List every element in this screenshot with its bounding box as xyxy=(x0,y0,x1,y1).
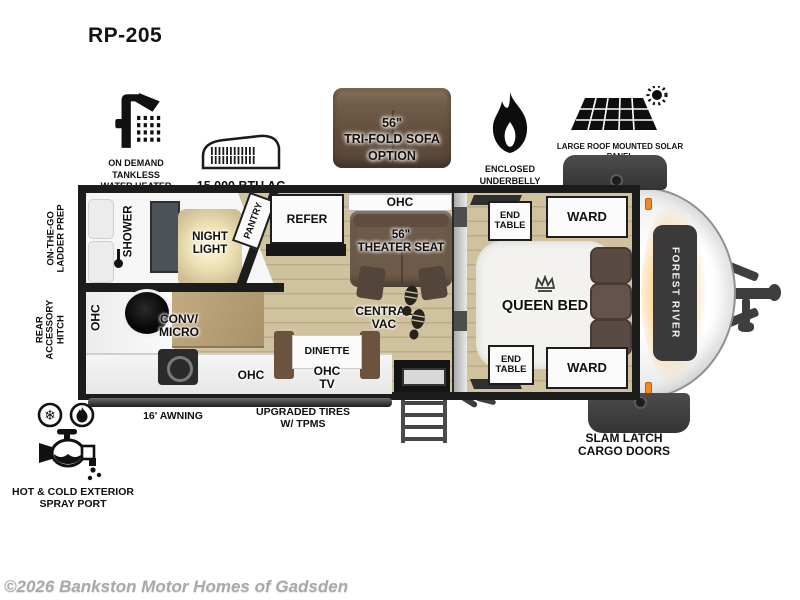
room-label-conv-micro: CONV/ MICRO xyxy=(144,313,214,339)
room-label-night-light: NIGHT LIGHT xyxy=(178,231,242,256)
awning-rail xyxy=(88,398,392,407)
feature-label: 56" TRI-FOLD SOFA OPTION xyxy=(333,115,451,164)
spray-port-icon: ❄ xyxy=(34,402,118,482)
flame-icon xyxy=(485,90,535,156)
cooktop-burner xyxy=(167,356,193,382)
room-label-ohc-left: OHC xyxy=(89,288,102,348)
callout-tires: UPGRADED TIRES W/ TPMS xyxy=(238,407,368,430)
room-label-ohc-top: OHC xyxy=(387,196,414,209)
wardrobe-bottom: WARD xyxy=(546,347,628,389)
page-title: RP-205 xyxy=(88,24,162,48)
callout-awning: 16' AWNING xyxy=(118,411,228,423)
brand-text: FOREST RIVER xyxy=(670,247,681,339)
tri-fold-sofa-image: 56" TRI-FOLD SOFA OPTION xyxy=(333,88,451,168)
room-label-dinette: DINETTE xyxy=(305,346,350,357)
tongue-jack xyxy=(742,298,750,324)
room-label-refer: REFER xyxy=(287,213,328,226)
shower-glass-panel xyxy=(150,201,180,273)
cooktop xyxy=(158,349,198,385)
room-label-theater-seat: 56" THEATER SEAT xyxy=(348,229,454,254)
room-label-end-table-bottom: END TABLE xyxy=(496,355,527,375)
trailer-front-cap: FOREST RIVER xyxy=(637,187,736,399)
snowflake-icon: ❄ xyxy=(44,407,56,423)
brand-panel: FOREST RIVER xyxy=(653,225,697,361)
callout-ladder-prep: ON-THE-GO LADDER PREP xyxy=(47,190,68,286)
feature-water-heater: ON DEMAND TANKLESS WATER HEATER xyxy=(86,88,186,193)
solar-panel-icon xyxy=(569,86,671,134)
refer-base xyxy=(266,244,346,256)
ac-unit-icon xyxy=(198,132,284,170)
room-label-ward-top: WARD xyxy=(567,210,607,224)
bath-fixture xyxy=(88,199,114,239)
bedroom-wall xyxy=(452,193,467,392)
dinette-bench xyxy=(360,331,380,379)
end-table-bottom: END TABLE xyxy=(488,345,534,385)
wall-accent xyxy=(454,311,467,331)
feature-forced-heat: ENCLOSED UNDERBELLY WITH FORCED HEAT xyxy=(462,90,558,199)
shower-head-icon xyxy=(105,88,167,150)
callout-cargo-doors: SLAM LATCH CARGO DOORS xyxy=(552,432,696,458)
entry-doorway xyxy=(394,360,450,392)
bed-pillow xyxy=(590,283,632,320)
callout-rear-hitch: REAR ACCESSORY HITCH xyxy=(35,298,66,362)
entry-step xyxy=(402,368,446,386)
floorplan-page: RP-205 ON DEMAND TANKLESS WATER HEATER 1… xyxy=(0,0,800,600)
bath-fixture xyxy=(88,241,114,283)
bathroom-wall xyxy=(86,283,284,292)
footprints-icon xyxy=(393,283,433,345)
room-label-shower: SHOWER xyxy=(123,196,136,266)
overhead-cabinet-top: OHC xyxy=(348,194,452,211)
entry-steps xyxy=(401,393,447,443)
sofa-back-cushion xyxy=(337,92,447,108)
wardrobe-top: WARD xyxy=(546,196,628,238)
dinette-bench xyxy=(274,331,294,379)
seat-back xyxy=(353,214,449,227)
dealer-watermark: ©2026 Bankston Motor Homes of Gadsden xyxy=(4,577,348,597)
marker-light-icon xyxy=(645,198,652,210)
room-label-ward-bottom: WARD xyxy=(567,361,607,375)
room-label-pantry: PANTRY xyxy=(243,201,265,240)
jack-wheel xyxy=(738,322,754,332)
callout-spray-port: HOT & COLD EXTERIOR SPRAY PORT xyxy=(0,487,146,510)
room-label-end-table-top: END TABLE xyxy=(495,211,526,231)
wall-accent xyxy=(454,207,467,227)
hitch-coupler xyxy=(768,284,781,301)
room-label-ohc-tv: OHC TV xyxy=(292,365,362,391)
shower-head-dot xyxy=(114,259,123,268)
seat-footrest xyxy=(356,265,386,300)
end-table-top: END TABLE xyxy=(488,201,532,241)
floorplan-body: SHOWER NIGHT LIGHT PANTRY REFER OHC 56" … xyxy=(78,185,640,400)
bed-pillow xyxy=(590,247,632,284)
refrigerator: REFER xyxy=(270,194,344,244)
crown-icon xyxy=(533,275,557,293)
